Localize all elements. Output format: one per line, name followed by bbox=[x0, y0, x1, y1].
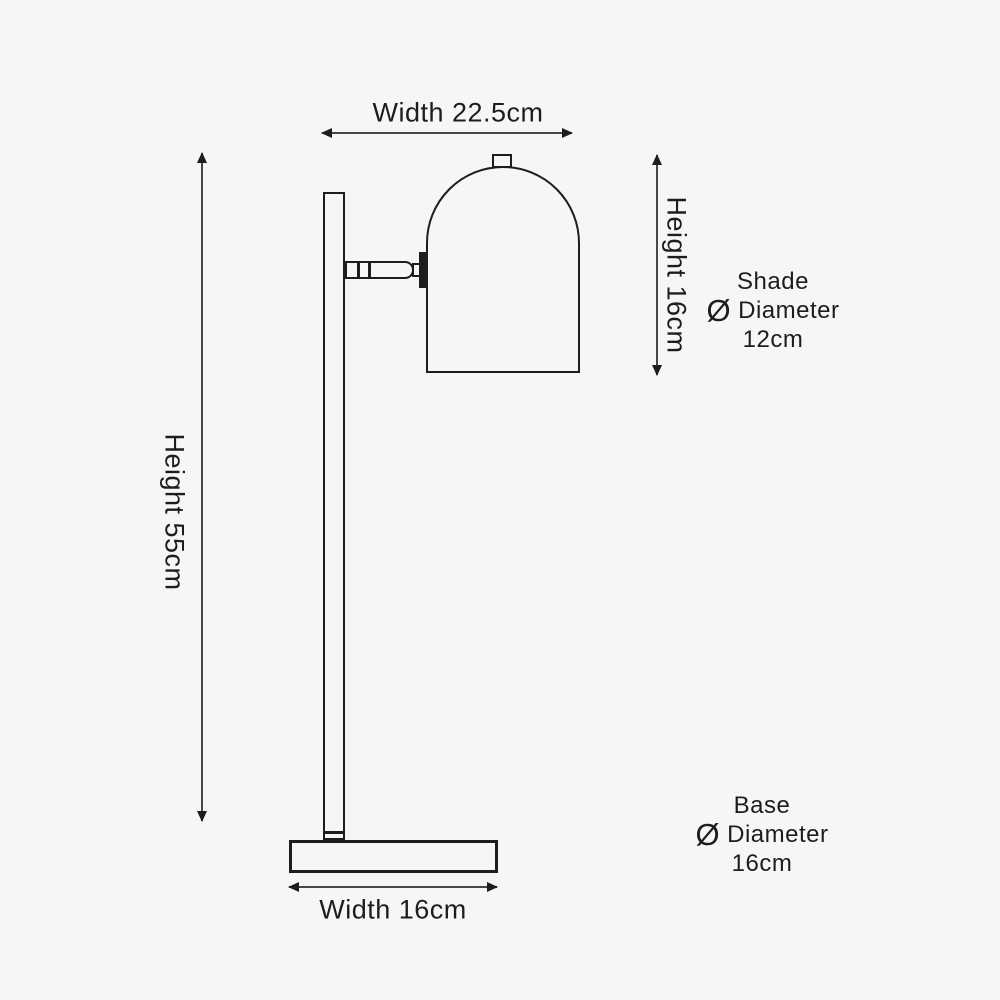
arm-divider bbox=[368, 261, 371, 279]
shade-height-dimension-arrow bbox=[656, 155, 658, 375]
top-width-label: Width 22.5cm bbox=[372, 98, 543, 129]
lamp-arm bbox=[345, 261, 414, 279]
width-dimension-arrow-top bbox=[322, 132, 572, 134]
shade-clamp bbox=[419, 252, 426, 288]
shade-note-diameter-line: ØDiameter bbox=[707, 296, 840, 325]
shade-diameter-note: Shade ØDiameter 12cm bbox=[707, 267, 840, 354]
base-note-value: 16cm bbox=[696, 849, 829, 878]
shade-note-diameter-word: Diameter bbox=[738, 297, 839, 324]
base-note-diameter-word: Diameter bbox=[727, 821, 828, 848]
lamp-dimension-diagram: Width 22.5cm Height 55cm Height 16cm Wid… bbox=[0, 0, 1000, 1000]
shade-note-value: 12cm bbox=[707, 325, 840, 354]
lamp-pole bbox=[323, 192, 345, 840]
base-note-diameter-line: ØDiameter bbox=[696, 820, 829, 849]
shade-knob bbox=[492, 154, 512, 168]
base-diameter-note: Base ØDiameter 16cm bbox=[696, 791, 829, 878]
overall-height-label: Height 55cm bbox=[159, 433, 190, 590]
shade-note-title: Shade bbox=[707, 267, 840, 296]
base-width-dimension-arrow bbox=[289, 886, 497, 888]
diameter-symbol: Ø bbox=[696, 817, 721, 852]
lamp-shade bbox=[426, 166, 580, 373]
pole-collar-line bbox=[323, 831, 345, 834]
shade-height-label: Height 16cm bbox=[661, 196, 692, 353]
base-width-label: Width 16cm bbox=[319, 895, 467, 926]
height-dimension-arrow-left bbox=[201, 153, 203, 821]
arm-divider bbox=[357, 261, 360, 279]
diameter-symbol: Ø bbox=[707, 293, 732, 328]
base-note-title: Base bbox=[696, 791, 829, 820]
lamp-base bbox=[289, 840, 498, 873]
